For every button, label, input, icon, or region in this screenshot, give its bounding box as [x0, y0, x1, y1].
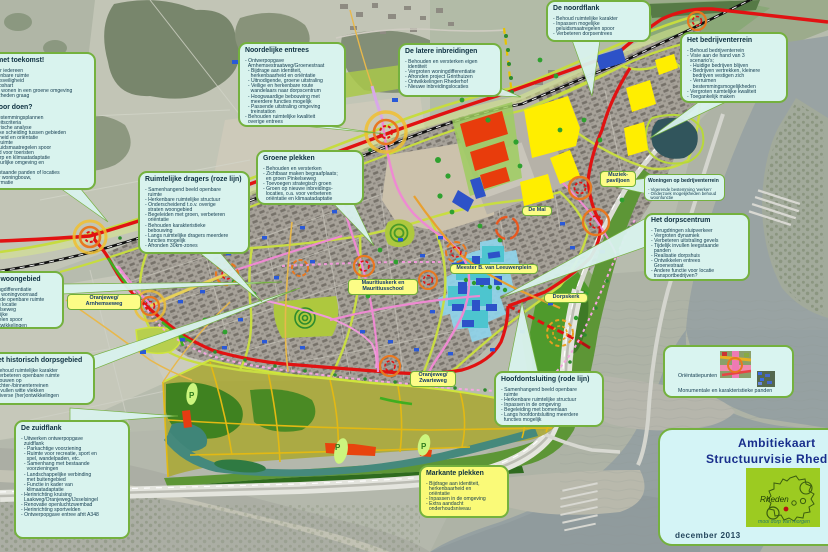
svg-text:P: P: [421, 442, 427, 451]
svg-text:mooi dorp van morgen: mooi dorp van morgen: [758, 519, 810, 525]
svg-text:P: P: [335, 443, 341, 452]
svg-text:P: P: [189, 391, 195, 400]
svg-text:Rheden: Rheden: [760, 495, 789, 504]
